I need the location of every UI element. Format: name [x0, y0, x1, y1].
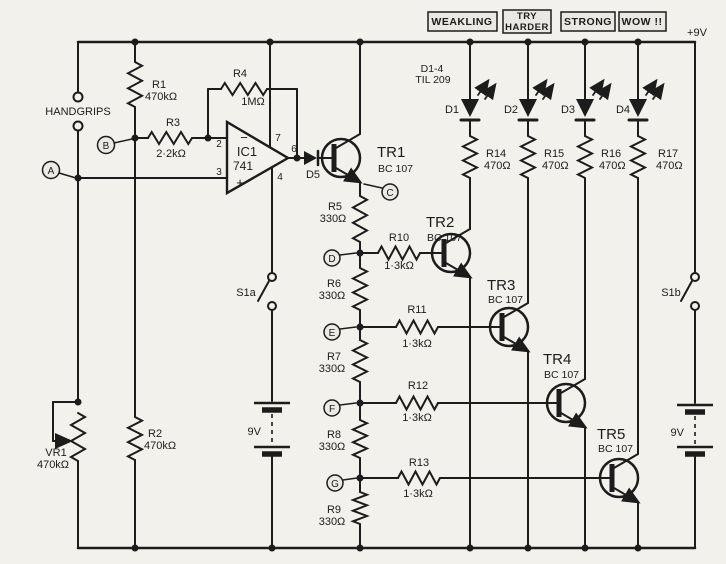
led-note-line2: TIL 209	[415, 74, 450, 86]
node-label-G: G	[327, 475, 357, 491]
handgrips-terminals: HANDGRIPS	[45, 42, 110, 402]
opamp-inv-sign: −	[240, 130, 248, 145]
banner-label-line1: TRY	[517, 11, 537, 22]
potentiometer-VR1: VR1 470kΩ	[37, 402, 85, 548]
tr2-ref: TR2	[426, 214, 454, 231]
handgrip-terminal-bottom	[74, 122, 83, 131]
tr4-ref: TR4	[543, 351, 571, 368]
svg-text:F: F	[329, 404, 335, 415]
diode-D5: D5	[304, 151, 332, 181]
switch-S1b: S1b	[661, 42, 699, 403]
banner-label-line2: HARDER	[505, 22, 549, 33]
tr4-part: BC 107	[544, 369, 579, 381]
r11-value: 1·3kΩ	[402, 338, 432, 350]
r8-value: 330Ω	[319, 441, 346, 453]
node-label-D: D	[324, 250, 356, 266]
resistor-R11: R11 1·3kΩ	[360, 304, 500, 350]
transistor-TR3: TR3 BC 107	[487, 277, 528, 548]
d3-ref: D3	[561, 104, 575, 116]
r14-ref: R14	[486, 148, 506, 160]
svg-text:A: A	[48, 166, 55, 177]
led-D4: D4	[616, 42, 663, 136]
resistor-R2: R2 470kΩ	[128, 417, 176, 548]
r10-ref: R10	[389, 232, 409, 244]
r15-ref: R15	[544, 148, 564, 160]
led-D1: D1	[445, 42, 495, 136]
banner-label: WEAKLING	[431, 16, 492, 28]
opamp-noninv-sign: +	[236, 175, 244, 190]
switch-S1a: S1a	[236, 273, 276, 401]
opamp-ref: IC1	[237, 144, 257, 159]
node-label-B: B	[98, 137, 133, 154]
svg-text:D: D	[328, 254, 335, 265]
r8-ref: R8	[327, 429, 341, 441]
svg-text:E: E	[329, 328, 336, 339]
resistor-R14: R14 470Ω	[463, 136, 511, 229]
r13-ref: R13	[409, 457, 429, 469]
rail-voltage-label: +9V	[687, 27, 708, 39]
r13-value: 1·3kΩ	[403, 488, 433, 500]
d1-ref: D1	[445, 104, 459, 116]
pin-2: 2	[216, 139, 222, 150]
r9-ref: R9	[327, 504, 341, 516]
pin-6: 6	[291, 144, 297, 155]
tr3-ref: TR3	[487, 277, 515, 294]
battery-left: 9V	[248, 403, 290, 548]
handgrip-terminal-top	[74, 93, 83, 102]
transistor-TR5: TR5 BC 107	[597, 426, 638, 548]
r4-ref: R4	[233, 68, 247, 80]
tr5-part: BC 107	[598, 443, 633, 455]
led-type-note: D1-4 TIL 209	[415, 63, 450, 86]
r5-value: 330Ω	[320, 213, 347, 225]
battery-right: 9V	[671, 405, 713, 548]
banner-wow: WOW !!	[619, 12, 666, 31]
banner-label: WOW !!	[622, 16, 663, 28]
d5-ref: D5	[306, 169, 320, 181]
resistor-R9: R9 330Ω	[319, 492, 367, 548]
node-label-A: A	[43, 162, 77, 179]
r16-ref: R16	[601, 148, 621, 160]
banner-label: STRONG	[564, 16, 612, 28]
vr1-value: 470kΩ	[37, 459, 69, 471]
svg-text:C: C	[386, 188, 393, 199]
tr3-part: BC 107	[488, 294, 523, 306]
r2-ref: R2	[148, 428, 162, 440]
led-D3: D3	[561, 42, 610, 136]
d4-ref: D4	[616, 104, 630, 116]
r4-value: 1MΩ	[241, 96, 265, 108]
transistor-TR1: TR1 BC 107	[322, 42, 413, 182]
r11-ref: R11	[407, 304, 426, 316]
node-label-F: F	[324, 400, 356, 416]
r12-value: 1·3kΩ	[402, 412, 432, 424]
node-label-E: E	[324, 324, 356, 340]
r15-value: 470Ω	[542, 160, 569, 172]
r3-value: 2·2kΩ	[156, 148, 186, 160]
node-label-C: C	[364, 184, 398, 200]
d2-ref: D2	[504, 104, 518, 116]
resistor-R3: R3 2·2kΩ	[135, 117, 227, 160]
resistor-R13: R13 1·3kΩ	[360, 457, 610, 500]
transistor-TR4: TR4 BC 107	[543, 351, 585, 548]
r9-value: 330Ω	[319, 516, 346, 528]
banner-strong: STRONG	[561, 12, 615, 31]
handgrips-label: HANDGRIPS	[45, 106, 110, 118]
tr5-ref: TR5	[597, 426, 625, 443]
r5-ref: R5	[328, 201, 342, 213]
opamp-type: 741	[233, 159, 253, 173]
battery-left-voltage: 9V	[248, 426, 262, 438]
r7-ref: R7	[327, 351, 341, 363]
tr2-part: BC 107	[427, 232, 462, 244]
circuit-schematic: +9V WEAKLING TRY HARDER STRONG WOW !! HA…	[0, 0, 726, 564]
s1a-label: S1a	[236, 287, 256, 299]
resistor-R15: R15 470Ω	[521, 136, 569, 303]
tr1-part: BC 107	[378, 163, 413, 175]
r14-value: 470Ω	[484, 160, 511, 172]
led-D2: D2	[504, 42, 553, 136]
r17-ref: R17	[658, 148, 678, 160]
r7-value: 330Ω	[319, 363, 346, 375]
battery-right-voltage: 9V	[671, 427, 685, 439]
tr1-ref: TR1	[377, 144, 405, 161]
opamp-IC1: − IC1 741 + 2 3 7 6 4	[78, 42, 304, 272]
r2-value: 470kΩ	[144, 440, 176, 452]
resistor-R1: R1 470kΩ	[128, 42, 177, 417]
svg-text:B: B	[103, 141, 110, 152]
r6-value: 330Ω	[319, 290, 346, 302]
r1-ref: R1	[152, 79, 166, 91]
s1b-label: S1b	[661, 287, 681, 299]
r1-value: 470kΩ	[145, 91, 177, 103]
pin-7: 7	[275, 133, 281, 144]
r6-ref: R6	[327, 278, 341, 290]
svg-text:G: G	[331, 479, 339, 490]
banner-try-harder: TRY HARDER	[503, 10, 551, 33]
vr1-ref: VR1	[45, 447, 66, 459]
pin-3: 3	[216, 167, 222, 178]
pin-4: 4	[277, 172, 283, 183]
scanned-schematic-page: +9V WEAKLING TRY HARDER STRONG WOW !! HA…	[0, 0, 726, 564]
r3-ref: R3	[166, 117, 180, 129]
resistor-R16: R16 470Ω	[578, 136, 626, 379]
r12-ref: R12	[408, 380, 428, 392]
r16-value: 470Ω	[599, 160, 626, 172]
r10-value: 1·3kΩ	[384, 260, 414, 272]
banner-weakling: WEAKLING	[428, 12, 497, 31]
r17-value: 470Ω	[656, 160, 683, 172]
